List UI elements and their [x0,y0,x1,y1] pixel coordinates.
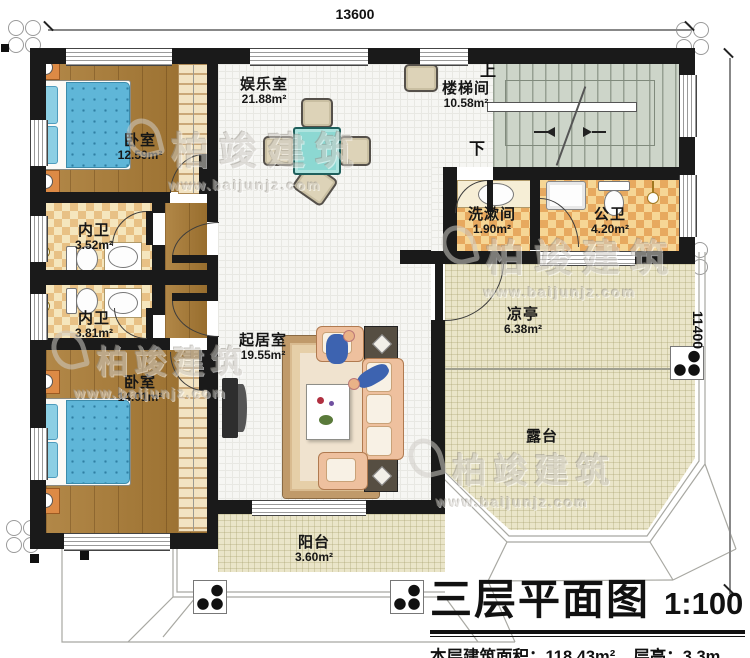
room-label-bedroom-top: 卧室 12.59m² [100,132,180,163]
sofa-cushion [366,394,392,424]
wall [635,251,695,264]
door-leaf [199,350,207,390]
tv [222,378,238,438]
person-figure-head [343,330,355,342]
duvet [66,400,130,484]
title-block: 三层平面图 1:100 本层建筑面积：118.43m²层高：3.3m [430,566,745,658]
stair-arrow-stem-left [534,131,548,133]
stair-handrail [487,102,637,112]
stair-down-label: 下 [469,135,485,159]
door-leaf [146,211,153,245]
floor-stats: 本层建筑面积：118.43m²层高：3.3m [430,643,745,658]
wall [30,270,218,285]
room-label-stairwell: 楼梯间 10.58m² [432,80,500,111]
window [420,48,468,66]
floor-area-label: 本层建筑面积： [430,648,546,658]
wall [30,340,46,428]
page-title: 三层平面图 [430,566,650,627]
wall [30,166,46,216]
side-table [364,458,398,492]
room-label-entertainment: 娱乐室 21.88m² [212,76,316,107]
dimension-line-top [48,29,691,31]
wall [679,48,695,75]
room-label-living-room: 起居室 19.55m² [215,332,311,363]
shower-head [647,192,659,204]
side-table [364,326,398,360]
wall [366,500,445,514]
wall [468,48,695,64]
window [66,48,172,66]
title-rule-thin [430,636,745,637]
stair-direction-arrow-right [583,127,592,137]
wall [368,48,420,64]
window [30,428,48,480]
room-label-balcony: 阳台 3.60m² [278,534,350,565]
wall [152,245,165,315]
sofa-cushion [366,426,392,456]
wall [30,48,66,64]
window [30,294,48,340]
stair-up-label: 上 [480,57,496,81]
wall [207,500,252,514]
dimension-width: 13600 [310,6,400,22]
floor-height-label: 层高： [633,648,683,658]
room-label-inner-bath-1: 内卫 3.52m² [68,222,120,253]
room-label-public-bath: 公卫 4.20m² [572,206,648,237]
window [30,216,48,262]
stair-railing [505,80,655,146]
room-label-washroom: 洗漱间 1.90m² [452,206,532,237]
game-table [293,127,341,175]
door-leaf [172,255,218,263]
wall [152,203,165,213]
door-leaf [435,262,443,320]
window [679,75,697,137]
wall [207,514,218,549]
floor-height-value: 3.3m [683,648,721,658]
wall [493,167,695,180]
window [30,120,48,166]
window [250,48,368,66]
armchair-cushion [326,458,356,482]
door-leaf [146,308,153,338]
entertainment-floor-strip [431,167,443,251]
door-leaf [199,154,207,194]
stair-arrow-stem-right [592,131,606,133]
dimension-line-right [729,58,731,594]
room-label-terrace: 露台 [508,428,576,445]
wall [443,167,457,180]
floor-area-value: 118.43m² [546,648,616,658]
chair [263,136,295,166]
chair [339,136,371,166]
dimension-height: 11400 [690,300,706,360]
wall [30,533,64,549]
door-leaf [172,293,218,301]
sliding-door [252,500,366,516]
pavilion-terrace-divider [445,368,695,370]
wall [30,192,170,203]
person-figure-head [348,378,360,390]
wall [400,250,431,264]
title-rule [430,630,745,634]
wall [30,64,46,120]
coffee-table [306,384,350,440]
wall [207,262,218,296]
drawing-scale: 1:100 [664,586,743,622]
room-label-bedroom-bottom: 卧室 14.01m² [98,374,182,405]
room-label-inner-bath-2: 内卫 3.81m² [68,310,120,341]
floor-plan-canvas: 卧室 12.59m² 娱乐室 21.88m² 楼梯间 10.58m² 上 下 内… [0,0,750,658]
window [64,533,170,551]
window [679,175,697,237]
room-label-pavilion: 凉亭 6.38m² [490,306,556,337]
window [540,251,635,266]
column-marker [390,580,424,614]
wall [172,48,250,64]
wall [431,320,445,500]
column-marker [193,580,227,614]
tv-screen [238,384,247,432]
